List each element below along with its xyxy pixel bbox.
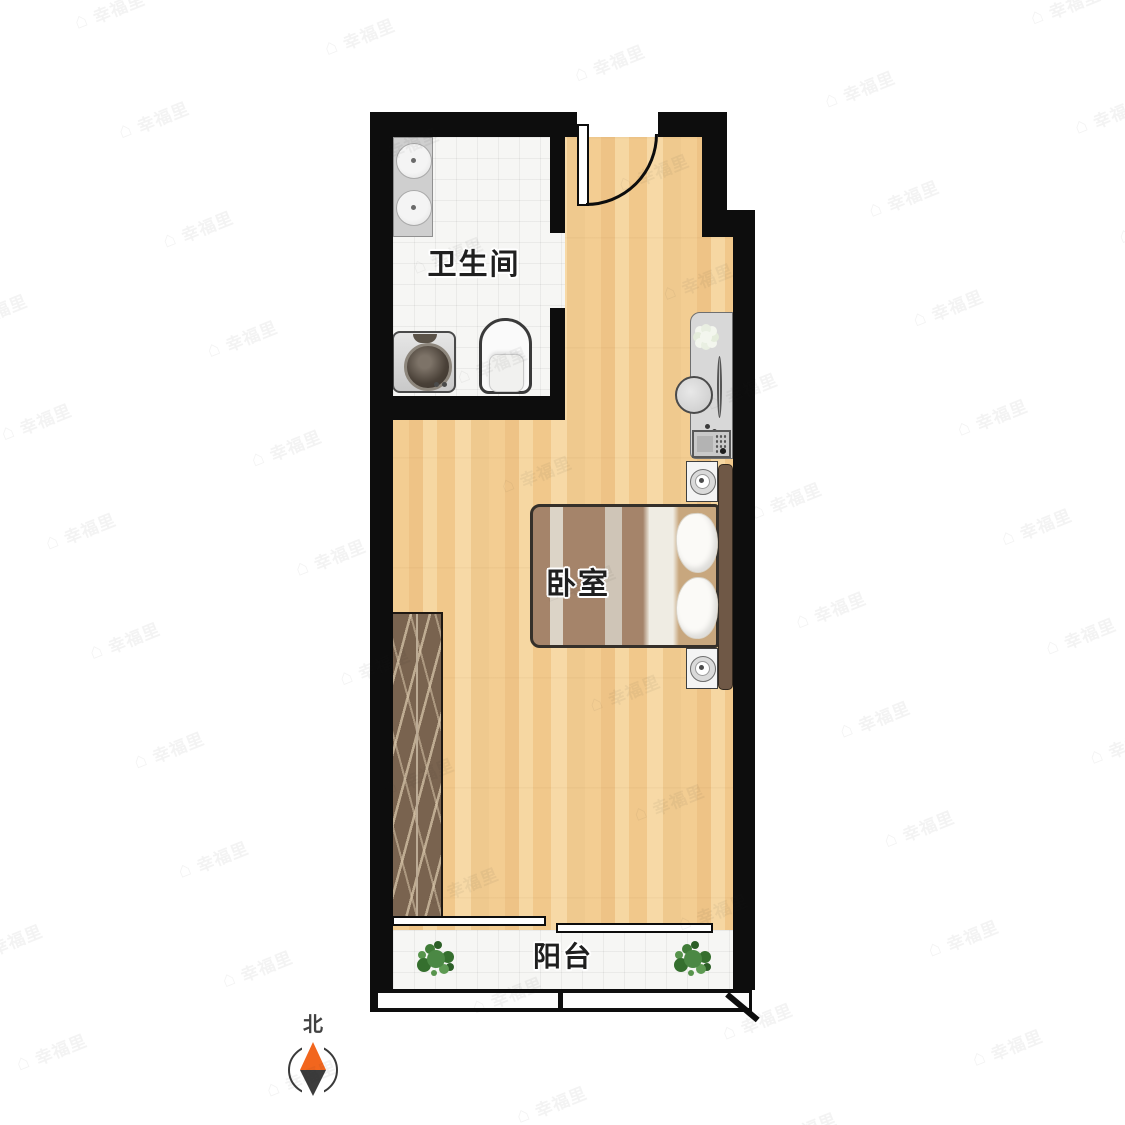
watermark: ⌂幸福里: [426, 1008, 676, 1125]
watermark: ⌂幸福里: [984, 19, 1125, 212]
wall-left: [370, 112, 393, 1012]
balcony-plant-icon: [427, 950, 445, 968]
washer-button: [442, 382, 447, 387]
nightstand: [686, 461, 718, 502]
nightstand: [686, 648, 718, 689]
bathroom-label: 卫生间: [404, 248, 544, 282]
watermark: ⌂幸福里: [132, 872, 382, 1065]
wall-step: [702, 210, 755, 237]
compass-north-label: 北: [283, 1012, 343, 1038]
sliding-door-panel: [392, 916, 546, 926]
wall-bathroom-bottom: [393, 396, 565, 420]
flower-pot-icon: [700, 331, 712, 343]
watermark: ⌂幸福里: [794, 732, 1044, 925]
watermark: ⌂幸福里: [0, 106, 73, 299]
watermark: ⌂幸福里: [28, 23, 278, 216]
wall-right-main: [733, 237, 755, 990]
wall-bathroom-divider-upper: [550, 137, 565, 233]
faucet-icon: [717, 356, 722, 418]
watermark: ⌂幸福里: [1044, 758, 1125, 951]
balcony-label: 阳台: [503, 940, 623, 974]
watermark: ⌂幸福里: [220, 1091, 470, 1125]
table-lamp-icon: [690, 656, 716, 682]
appliance-door: [697, 436, 713, 452]
watermark: ⌂幸福里: [190, 0, 440, 23]
lamp-center: [699, 665, 704, 670]
counter-sink: [675, 376, 713, 414]
pillow: [674, 512, 719, 574]
bed-headboard: [718, 464, 733, 690]
watermark: ⌂幸福里: [0, 736, 88, 929]
toilet-seat: [489, 354, 524, 392]
watermark: ⌂幸福里: [1073, 237, 1125, 430]
balcony-window: [374, 989, 752, 1012]
watermark: ⌂幸福里: [1028, 128, 1125, 321]
wall-bathroom-divider-lower: [550, 308, 565, 398]
sink-basin: [396, 143, 432, 179]
wall-right-upper: [702, 137, 727, 210]
balcony-window-divider: [558, 991, 563, 1010]
watermark: ⌂幸福里: [0, 325, 161, 518]
lamp-center: [699, 478, 704, 483]
watermark: ⌂幸福里: [0, 955, 176, 1125]
pillow: [675, 576, 719, 639]
watermark: ⌂幸福里: [882, 951, 1125, 1125]
bedroom-label: 卧室: [518, 568, 638, 602]
sliding-door-panel: [556, 923, 713, 933]
balcony-plant-icon: [684, 950, 702, 968]
double-vanity: [393, 137, 433, 237]
watermark: ⌂幸福里: [926, 1060, 1125, 1125]
watermark: ⌂幸福里: [440, 0, 690, 49]
toilet: [479, 318, 532, 394]
watermark: ⌂幸福里: [0, 846, 132, 1039]
watermark: ⌂幸福里: [470, 1117, 720, 1125]
washer-button: [434, 382, 439, 387]
watermark: ⌂幸福里: [955, 539, 1125, 732]
watermark: ⌂幸福里: [940, 0, 1125, 102]
watermark: ⌂幸福里: [73, 132, 323, 325]
watermark: ⌂幸福里: [867, 321, 1117, 514]
watermark: ⌂幸福里: [1117, 347, 1125, 540]
watermark: ⌂幸福里: [117, 242, 367, 435]
watermark: ⌂幸福里: [0, 216, 117, 409]
sink-basin: [396, 190, 432, 226]
watermark: ⌂幸福里: [44, 653, 294, 846]
watermark: ⌂幸福里: [0, 0, 28, 189]
counter-knob: [705, 424, 710, 429]
watermark: ⌂幸福里: [911, 430, 1125, 623]
wardrobe: [391, 612, 443, 918]
watermark: ⌂幸福里: [999, 649, 1125, 842]
watermark: ⌂幸福里: [0, 434, 205, 627]
table-lamp-icon: [690, 469, 716, 495]
watermark: ⌂幸福里: [690, 0, 940, 75]
watermark: ⌂幸福里: [0, 544, 249, 737]
washing-machine: [392, 331, 456, 393]
watermark: ⌂幸福里: [676, 1034, 926, 1125]
watermark: ⌂幸福里: [1088, 868, 1125, 1061]
watermark: ⌂幸福里: [838, 841, 1088, 1034]
watermark: ⌂幸福里: [778, 102, 1028, 295]
compass-needle-south: [300, 1070, 326, 1096]
wall-top-left: [370, 112, 577, 137]
watermark: ⌂幸福里: [0, 627, 44, 820]
wall-top-right: [658, 112, 727, 137]
watermark: ⌂幸福里: [823, 211, 1073, 404]
floor-plan: 卫生间 卧室 阳台 北 ⌂幸福里⌂幸福里⌂幸福里⌂幸福里⌂幸福里⌂幸福里⌂幸福里…: [0, 0, 1125, 1125]
watermark: ⌂幸福里: [749, 623, 999, 816]
watermark: ⌂幸福里: [0, 0, 234, 106]
washer-detergent-tray: [413, 334, 437, 343]
watermark: ⌂幸福里: [734, 0, 984, 185]
compass-needle-north: [300, 1042, 326, 1070]
watermark: ⌂幸福里: [0, 1065, 220, 1125]
appliance-button: [720, 448, 726, 454]
small-appliance: [692, 430, 731, 458]
watermark: ⌂幸福里: [88, 763, 338, 956]
